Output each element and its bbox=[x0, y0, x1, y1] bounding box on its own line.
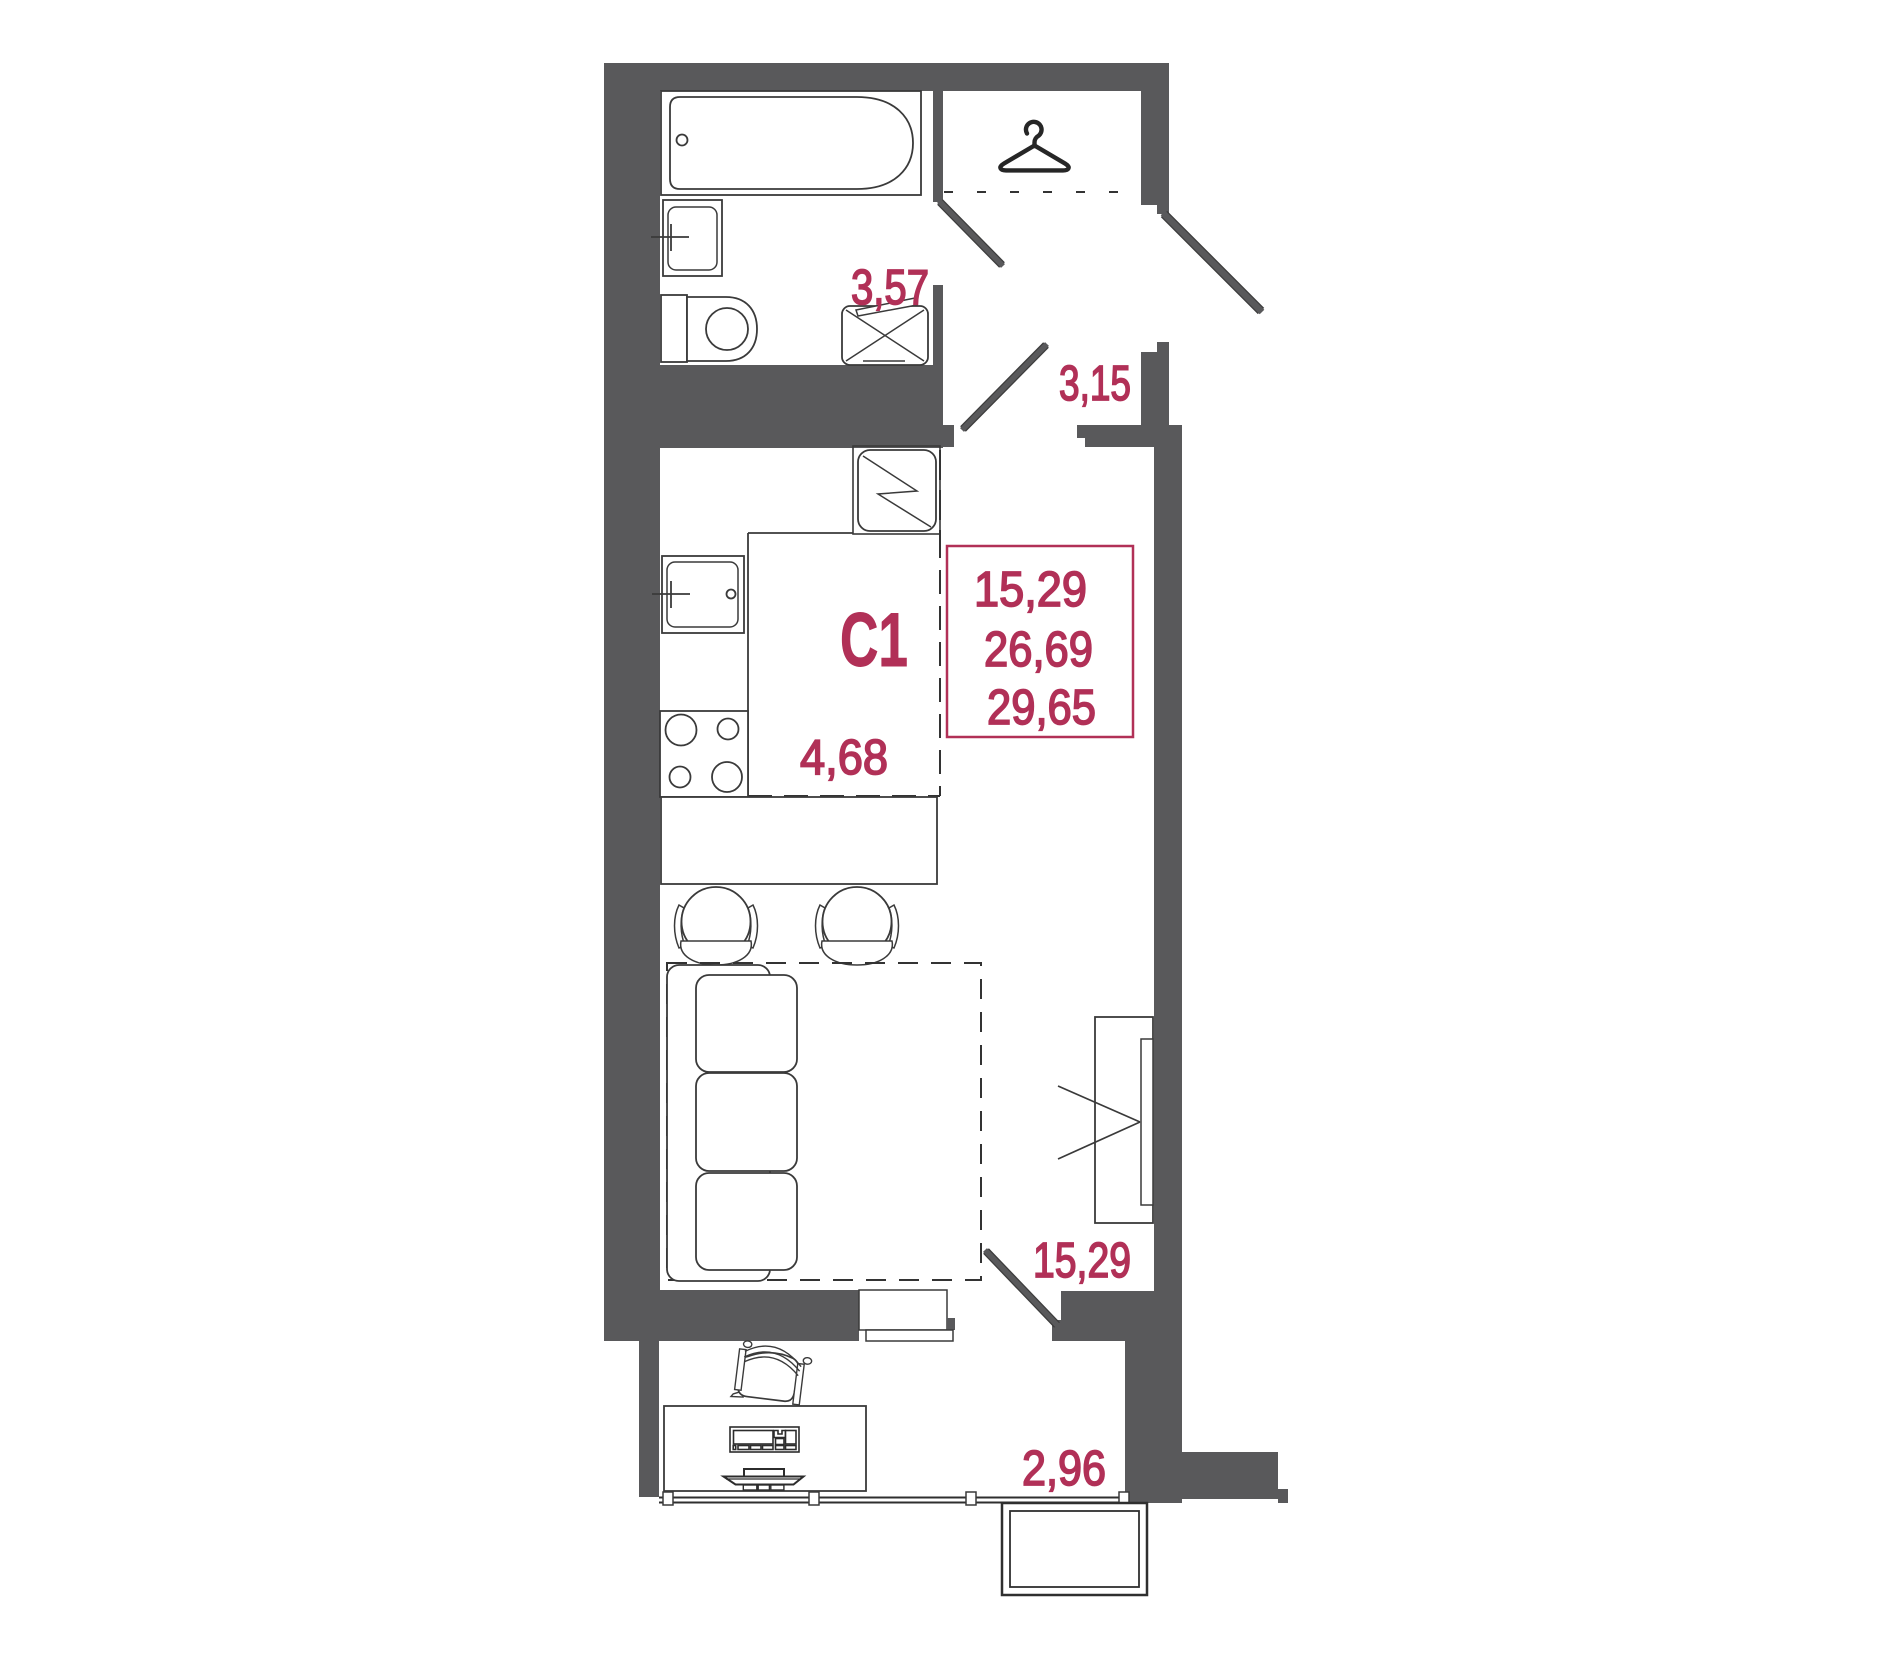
svg-text:29,65: 29,65 bbox=[987, 681, 1096, 735]
svg-text:3,57: 3,57 bbox=[851, 261, 929, 315]
svg-text:15,29: 15,29 bbox=[1033, 1234, 1131, 1288]
svg-text:26,69: 26,69 bbox=[984, 623, 1093, 677]
svg-text:4,68: 4,68 bbox=[800, 731, 888, 785]
svg-text:15,29: 15,29 bbox=[974, 563, 1087, 617]
svg-text:3,15: 3,15 bbox=[1059, 357, 1131, 411]
svg-text:2,96: 2,96 bbox=[1022, 1442, 1106, 1496]
svg-text:C1: C1 bbox=[840, 598, 908, 683]
